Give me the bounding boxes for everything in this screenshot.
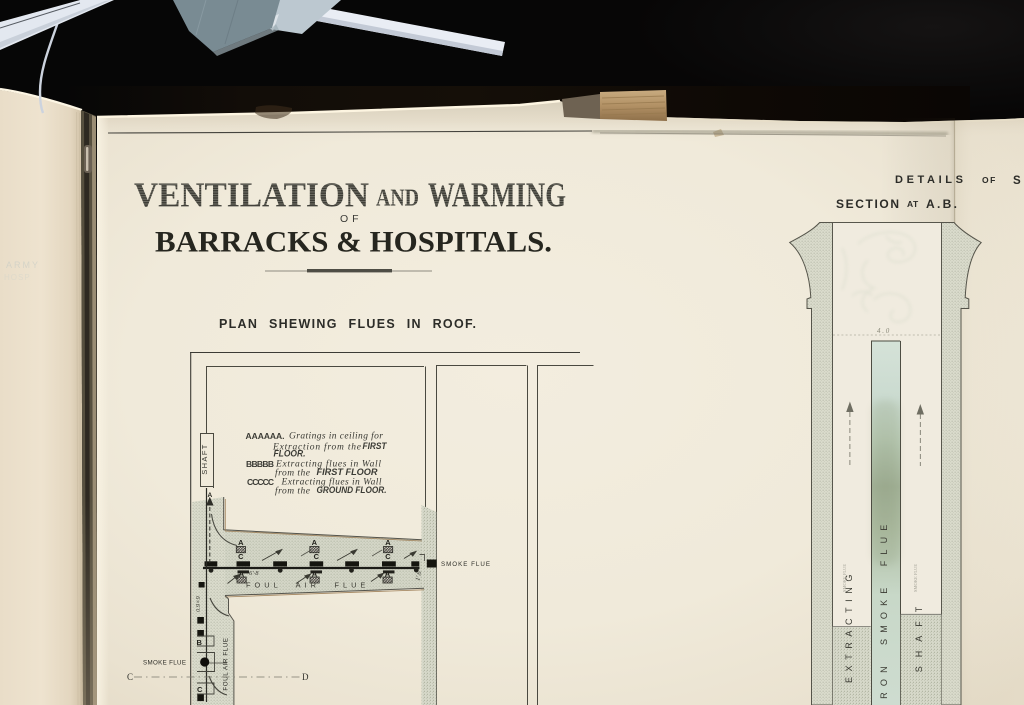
svg-text:D: D	[302, 672, 309, 682]
svg-text:A: A	[312, 538, 318, 547]
svg-text:S: S	[1013, 175, 1021, 187]
svg-text:SMOKE FLUE: SMOKE FLUE	[143, 660, 186, 667]
svg-text:VENTILATION: VENTILATION	[134, 176, 369, 215]
svg-text:6'·8: 6'·8	[249, 570, 259, 577]
svg-text:FLOOR.: FLOOR.	[274, 449, 306, 460]
svg-text:AND: AND	[376, 185, 419, 212]
svg-text:FOUL AIR FLUE: FOUL AIR FLUE	[223, 637, 230, 690]
svg-text:BARRACKS & HOSPITALS.: BARRACKS & HOSPITALS.	[155, 227, 552, 259]
svg-text:IRON SMOKE FLUE: IRON SMOKE FLUE	[879, 518, 889, 705]
svg-text:C: C	[314, 552, 320, 561]
svg-text:‌‌HOSP‌: ‌‌HOSP‌	[4, 273, 31, 282]
svg-text:A.B.: A.B.	[926, 197, 959, 211]
svg-text:WARMING: WARMING	[428, 176, 566, 215]
svg-text:FOUL AIR FLUE: FOUL AIR FLUE	[246, 581, 369, 590]
svg-text:BBBBB: BBBBB	[246, 459, 274, 469]
svg-text:SECTION: SECTION	[836, 197, 899, 211]
svg-text:0.9×9: 0.9×9	[195, 595, 202, 612]
svg-text:Gratings in ceiling for: Gratings in ceiling for	[289, 431, 383, 442]
svg-text:FIRST FLOOR: FIRST FLOOR	[317, 467, 378, 478]
svg-text:FIRST: FIRST	[363, 441, 388, 452]
svg-text:C: C	[385, 552, 391, 561]
svg-text:AT: AT	[907, 199, 919, 209]
svg-text:AAAAAA.: AAAAAA.	[246, 431, 285, 441]
svg-text:CCCCC: CCCCC	[247, 477, 274, 487]
svg-text:GROUND FLOOR.: GROUND FLOOR.	[317, 485, 387, 496]
svg-text:SHAFT: SHAFT	[200, 443, 209, 475]
svg-text:‌ARMY‌: ‌ARMY‌	[6, 260, 40, 270]
svg-text:C: C	[127, 672, 133, 682]
svg-text:4 . 0: 4 . 0	[877, 327, 890, 335]
svg-text:C: C	[238, 552, 244, 561]
svg-text:SMOKE FLUE: SMOKE FLUE	[913, 564, 918, 592]
svg-text:SHAFT: SHAFT	[914, 598, 924, 673]
svg-text:A: A	[385, 538, 391, 547]
svg-text:EXTRACTING: EXTRACTING	[844, 569, 854, 683]
svg-text:OF: OF	[340, 213, 363, 225]
svg-text:C: C	[197, 685, 203, 694]
svg-text:from the: from the	[275, 486, 310, 497]
svg-text:OF: OF	[982, 175, 997, 185]
svg-text:A: A	[238, 538, 244, 547]
svg-text:SMOKE FLUE: SMOKE FLUE	[441, 561, 490, 568]
